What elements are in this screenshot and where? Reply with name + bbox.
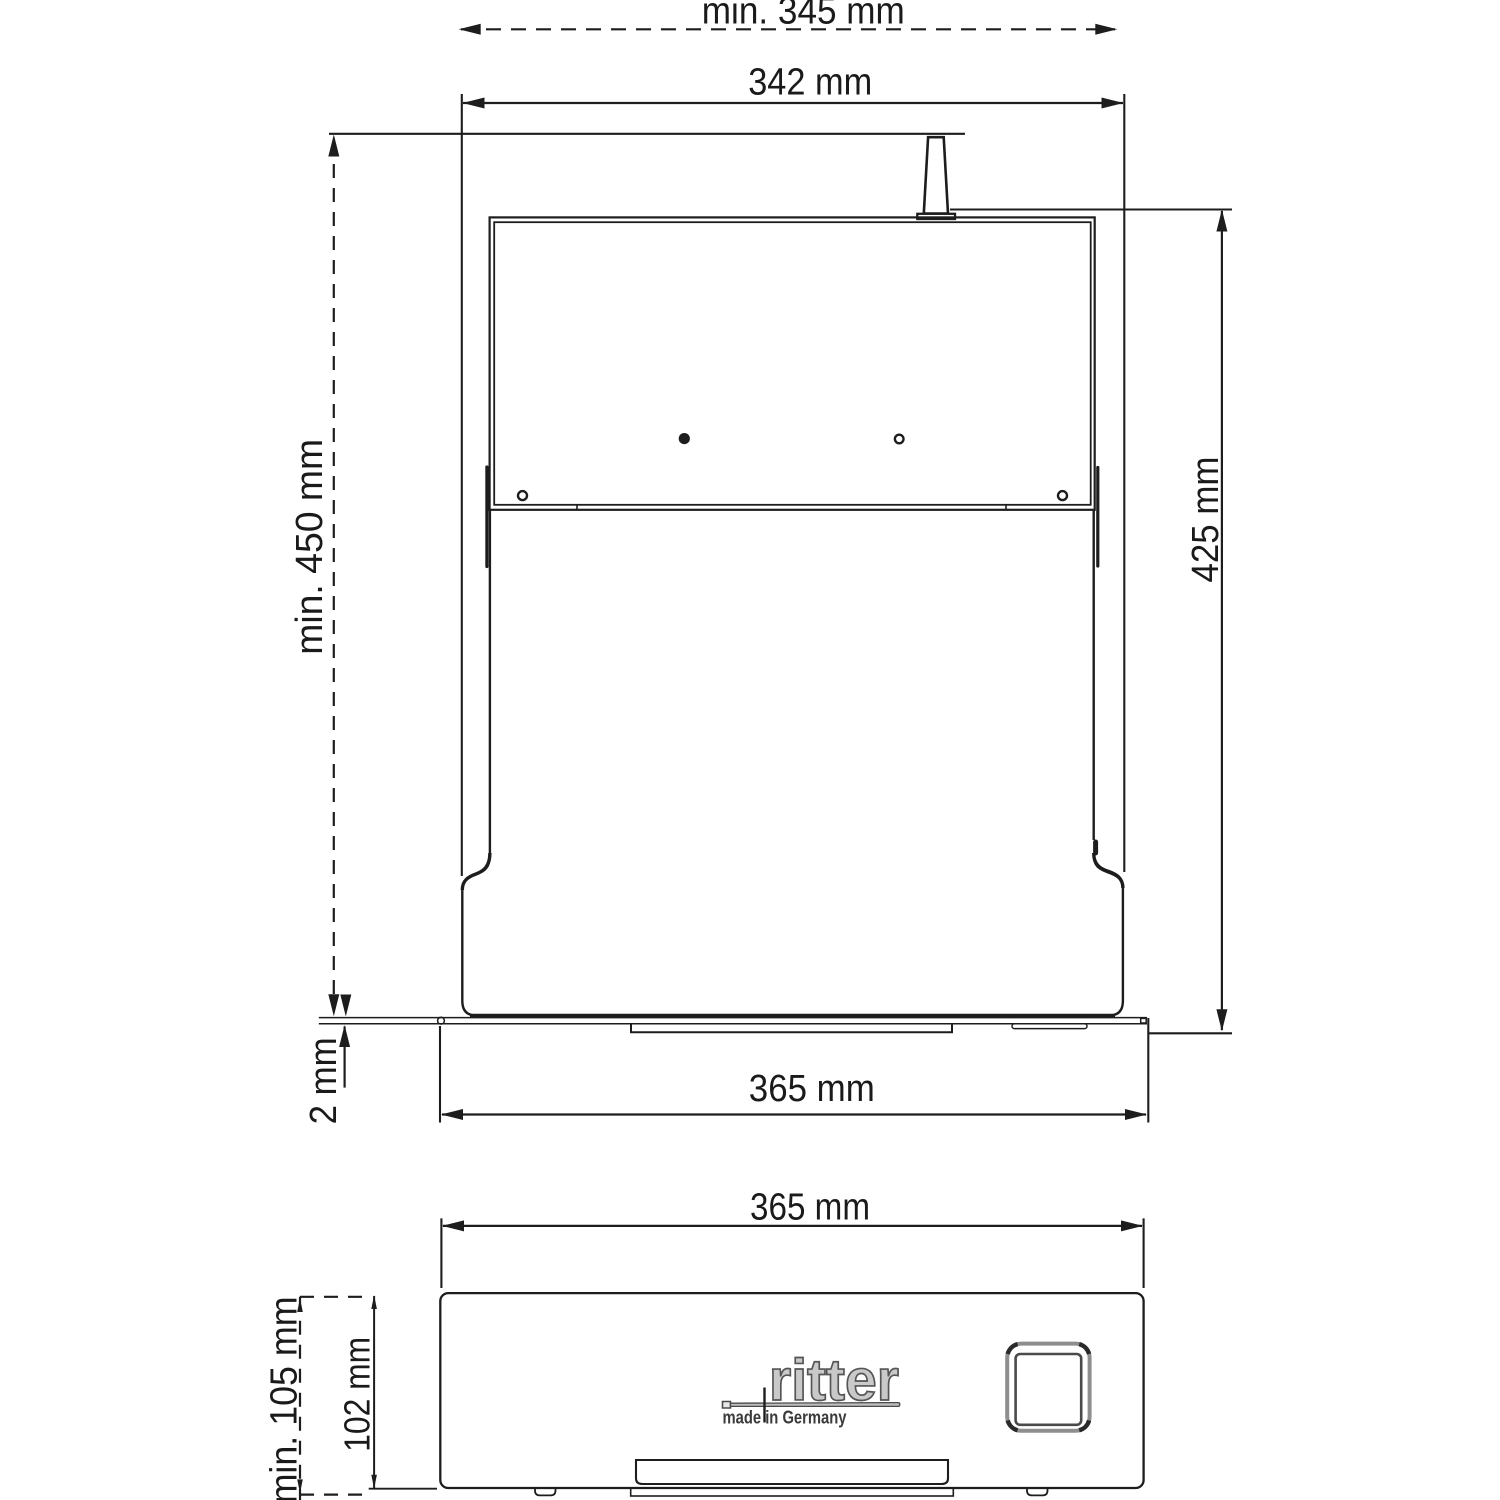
- svg-text:2 mm: 2 mm: [303, 1037, 345, 1124]
- svg-text:365 mm: 365 mm: [749, 1068, 875, 1110]
- svg-text:342 mm: 342 mm: [748, 62, 872, 104]
- svg-text:102 mm: 102 mm: [337, 1337, 378, 1452]
- svg-text:min. 345 mm: min. 345 mm: [702, 0, 905, 32]
- svg-text:425 mm: 425 mm: [1185, 457, 1227, 583]
- svg-text:made in Germany: made in Germany: [723, 1407, 847, 1427]
- svg-text:365 mm: 365 mm: [750, 1187, 870, 1229]
- svg-text:min. 450 mm: min. 450 mm: [289, 439, 331, 655]
